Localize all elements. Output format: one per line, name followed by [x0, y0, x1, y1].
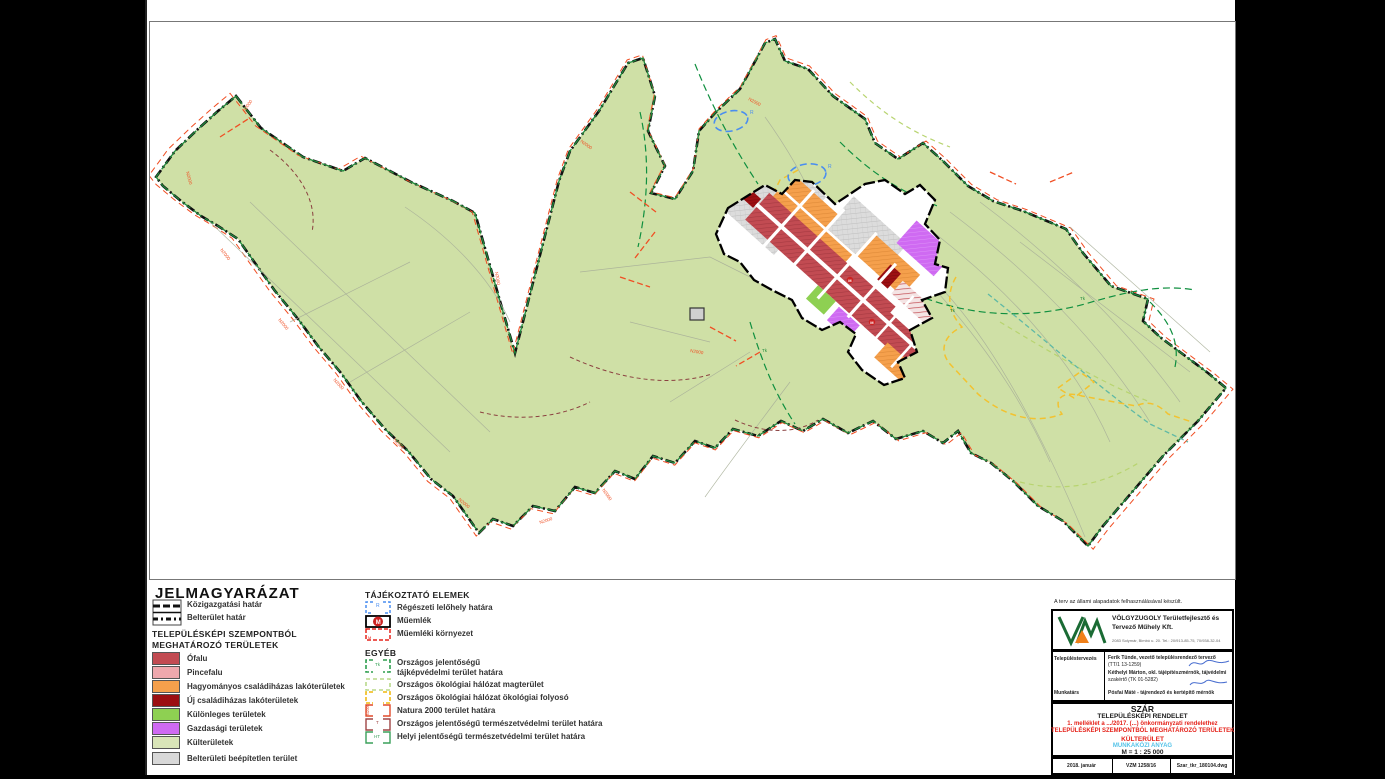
municipality-boundary — [150, 36, 1233, 550]
info-label-arch: Régészeti lelőhely határa — [397, 603, 493, 612]
map-frame: R R N2000 N2000 N2000 N2000 N2000 N2000 … — [149, 21, 1236, 580]
plan-date: 2018. január — [1051, 763, 1112, 769]
info-label-monument: Műemlék — [397, 616, 431, 625]
svg-text:N2000: N2000 — [277, 317, 290, 331]
boundary-legend-symbol — [152, 599, 182, 626]
monument-symbol: M — [365, 615, 391, 628]
other-label-landscape-2: tájképvédelmi terület határa — [397, 668, 503, 677]
row2-line1: Pósfai Máté - tájrendező és kertépítő mé… — [1108, 690, 1214, 696]
landscape-symbol: Tk — [365, 659, 391, 673]
boundary-label-1: Közigazgatási határ — [187, 600, 262, 609]
legend-label-kulteruletek: Külterületek — [187, 738, 233, 747]
svg-text:N2000: N2000 — [332, 377, 345, 391]
canvas: R R N2000 N2000 N2000 N2000 N2000 N2000 … — [0, 0, 1385, 779]
local-nature-symbol: HT — [365, 730, 391, 744]
svg-text:N2000: N2000 — [601, 488, 613, 502]
subject-line-2: KÜLTERÜLET — [1051, 736, 1234, 743]
svg-text:Tk: Tk — [375, 662, 381, 667]
svg-text:Tk: Tk — [1080, 296, 1086, 301]
legend-label-kulonleges: Különleges területek — [187, 710, 266, 719]
eco-core-symbol — [365, 678, 391, 691]
legend-label-hagyomanyos: Hagyományos családiházas lakóterületek — [187, 682, 345, 691]
municipality-map: R R N2000 N2000 N2000 N2000 N2000 N2000 … — [150, 22, 1235, 579]
row2-label: Munkatárs — [1054, 690, 1079, 696]
company-name-2: Tervező Műhely Kft. — [1112, 624, 1173, 631]
legend-label-pincefalu: Pincefalu — [187, 668, 223, 677]
vzm-logo — [1055, 613, 1107, 647]
other-title: EGYÉB — [365, 648, 396, 658]
other-label-natura: Natura 2000 terület határa — [397, 706, 495, 715]
swatch-hagyomanyos — [152, 680, 180, 693]
svg-text:N2000: N2000 — [366, 704, 370, 715]
disclaimer: A terv az állami alapadatok felhasználás… — [1054, 599, 1182, 605]
other-label-eco-corridor: Országos ökológiai hálózat ökológiai fol… — [397, 693, 569, 702]
svg-text:M: M — [376, 620, 381, 626]
info-title: TÁJÉKOZTATÓ ELEMEK — [365, 590, 470, 600]
svg-text:T: T — [376, 720, 379, 725]
swatch-kulteruletek — [152, 736, 180, 749]
arch-r-label: R — [828, 164, 832, 170]
svg-text:R: R — [376, 603, 380, 609]
subject-line-1: TELEPÜLÉSKÉPI SZEMPONTBÓL MEGHATÁROZÓ TE… — [1051, 728, 1234, 734]
svg-text:M: M — [368, 635, 371, 640]
other-label-local-nature: Helyi jelentőségű természetvédelmi terül… — [397, 732, 585, 741]
natura2000-symbol: N2000 N2000 — [365, 703, 391, 718]
info-label-monument-env: Műemléki környezet — [397, 629, 473, 638]
row1-line4: szakértő (TK 01-5282) — [1108, 677, 1158, 683]
national-nature-symbol: T — [365, 717, 391, 731]
plan-sheet: R R N2000 N2000 N2000 N2000 N2000 N2000 … — [145, 0, 1235, 775]
row1-label: Településtervezés — [1054, 656, 1097, 662]
other-label-landscape-1: Országos jelentőségű — [397, 658, 480, 667]
file-name: Szar_tkr_180104.dwg — [1170, 763, 1234, 769]
arch-site-symbol: R — [365, 601, 391, 614]
legend-section-title-1: TELEPÜLÉSKÉPI SZEMPONTBÓL — [152, 629, 297, 639]
planners-divider — [1104, 650, 1105, 702]
legend-label-beepitetlen: Belterületi beépítetlen terület — [187, 754, 297, 763]
svg-text:N2000: N2000 — [219, 248, 231, 262]
signature-2 — [1187, 676, 1231, 690]
swatch-gazdasagi — [152, 722, 180, 735]
swatch-pincefalu — [152, 666, 180, 679]
svg-text:HT: HT — [374, 734, 380, 739]
legend-label-gazdasagi: Gazdasági területek — [187, 724, 263, 733]
annex-line: 1. melléklet a .../2017. (...) önkormány… — [1051, 721, 1234, 727]
swatch-uj-csaladihazas — [152, 694, 180, 707]
project-number: VZM 1258/16 — [1112, 763, 1170, 769]
scale-label: M = 1 : 25 000 — [1051, 749, 1234, 756]
boundary-label-2: Belterület határ — [187, 613, 246, 622]
arch-r-label: R — [750, 110, 754, 116]
legend-label-uj-csaladihazas: Új családiházas lakóterületek — [187, 696, 298, 705]
svg-text:N2000: N2000 — [539, 516, 554, 525]
legend-label-ofalu: Ófalu — [187, 654, 207, 663]
kulterulet-area — [156, 39, 1226, 546]
svg-text:Tk: Tk — [950, 308, 956, 313]
swatch-beepitetlen — [152, 752, 180, 765]
other-label-national-nature: Országos jelentőségű természetvédelmi te… — [397, 719, 602, 728]
swatch-ofalu — [152, 652, 180, 665]
svg-text:Tk: Tk — [762, 348, 768, 353]
company-name-1: VÖLGYZUGOLY Területfejlesztő és — [1112, 615, 1219, 622]
doc-type: TELEPÜLÉSKÉPI RENDELET — [1051, 713, 1234, 720]
company-address: 2083 Solymár, Bimbó u. 20. Tel.: 20/913-… — [1112, 638, 1220, 643]
legend-section-title-2: MEGHATÁROZÓ TERÜLETEK — [152, 640, 279, 650]
swatch-kulonleges — [152, 708, 180, 721]
farm-block — [690, 308, 704, 320]
other-label-eco-core: Országos ökológiai hálózat magterület — [397, 680, 544, 689]
signature-1 — [1187, 656, 1231, 670]
monument-env-symbol: M — [365, 628, 391, 641]
row1-line2: (TT/1 13-1259) — [1108, 662, 1141, 668]
